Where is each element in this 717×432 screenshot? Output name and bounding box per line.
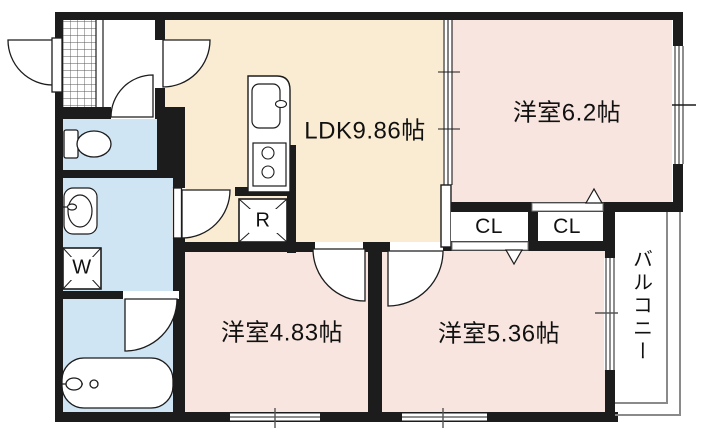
wall-top xyxy=(55,12,682,20)
kitchen-counter-icon xyxy=(248,76,290,192)
wall-toilet-washroom xyxy=(63,170,185,178)
floorplan-drawing xyxy=(0,0,717,432)
entrance-door-swing xyxy=(8,40,53,85)
closet-right-door-track xyxy=(532,203,603,211)
wall-bedrooms-divider xyxy=(368,242,382,422)
floorplan: LDK9.86帖 洋室6.2帖 洋室4.83帖 洋室5.36帖 CL CL W … xyxy=(0,0,717,432)
closet-right-interior xyxy=(538,212,603,241)
sink-icon xyxy=(61,188,97,234)
refrigerator-icon xyxy=(239,199,287,242)
wall-bottom xyxy=(55,412,618,422)
toilet-icon xyxy=(64,130,111,158)
genkan-tile-pattern xyxy=(63,20,96,110)
entrance-door-leaf xyxy=(52,38,62,92)
wall-closet-divider xyxy=(528,212,538,241)
closet-left-interior xyxy=(451,212,528,241)
balcony-outline xyxy=(615,212,680,415)
bedroom-top-right-floor xyxy=(452,20,672,202)
open-door-leaf xyxy=(441,185,451,247)
window-bedroom1-right xyxy=(672,46,696,164)
stove-icon xyxy=(253,143,286,186)
kitchen-faucet-icon xyxy=(276,101,287,108)
washing-machine-icon xyxy=(63,248,101,289)
wall-hall-right-top xyxy=(155,12,165,40)
wall-hall-right-bottom xyxy=(155,88,165,109)
bathtub-icon xyxy=(59,358,173,408)
wall-closet-right xyxy=(603,202,615,251)
wall-bedroom2-top xyxy=(180,242,315,252)
wall-toilet-right-block xyxy=(157,119,185,178)
closet-left-door-track xyxy=(452,242,528,250)
opening-bathroom xyxy=(123,291,179,299)
washroom-door-leaf xyxy=(174,188,182,238)
balcony-outer-line xyxy=(615,212,680,415)
balcony-inner-line xyxy=(615,212,667,403)
